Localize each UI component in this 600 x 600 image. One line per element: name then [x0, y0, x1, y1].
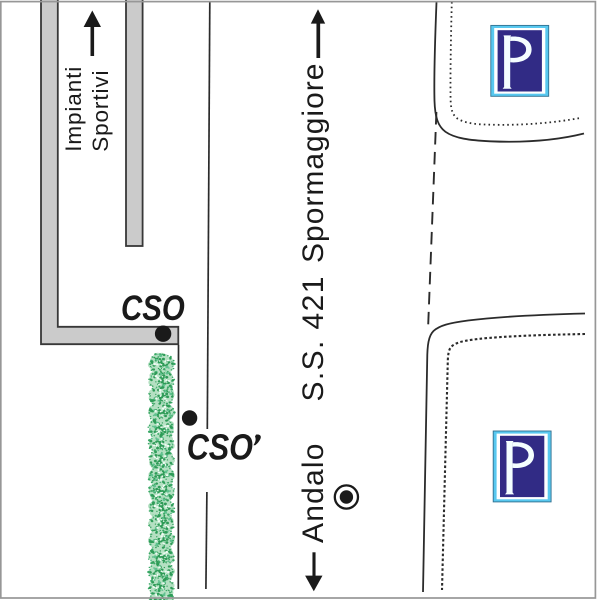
svg-text:CSO: CSO: [187, 428, 253, 468]
svg-text:CSO: CSO: [121, 289, 185, 328]
svg-text:Sportivi: Sportivi: [88, 70, 113, 152]
svg-text:Spormaggiore: Spormaggiore: [297, 63, 330, 263]
svg-text:Andalo: Andalo: [297, 442, 330, 543]
svg-text:Impianti: Impianti: [61, 66, 86, 152]
svg-text:S.S. 421: S.S. 421: [297, 275, 330, 401]
